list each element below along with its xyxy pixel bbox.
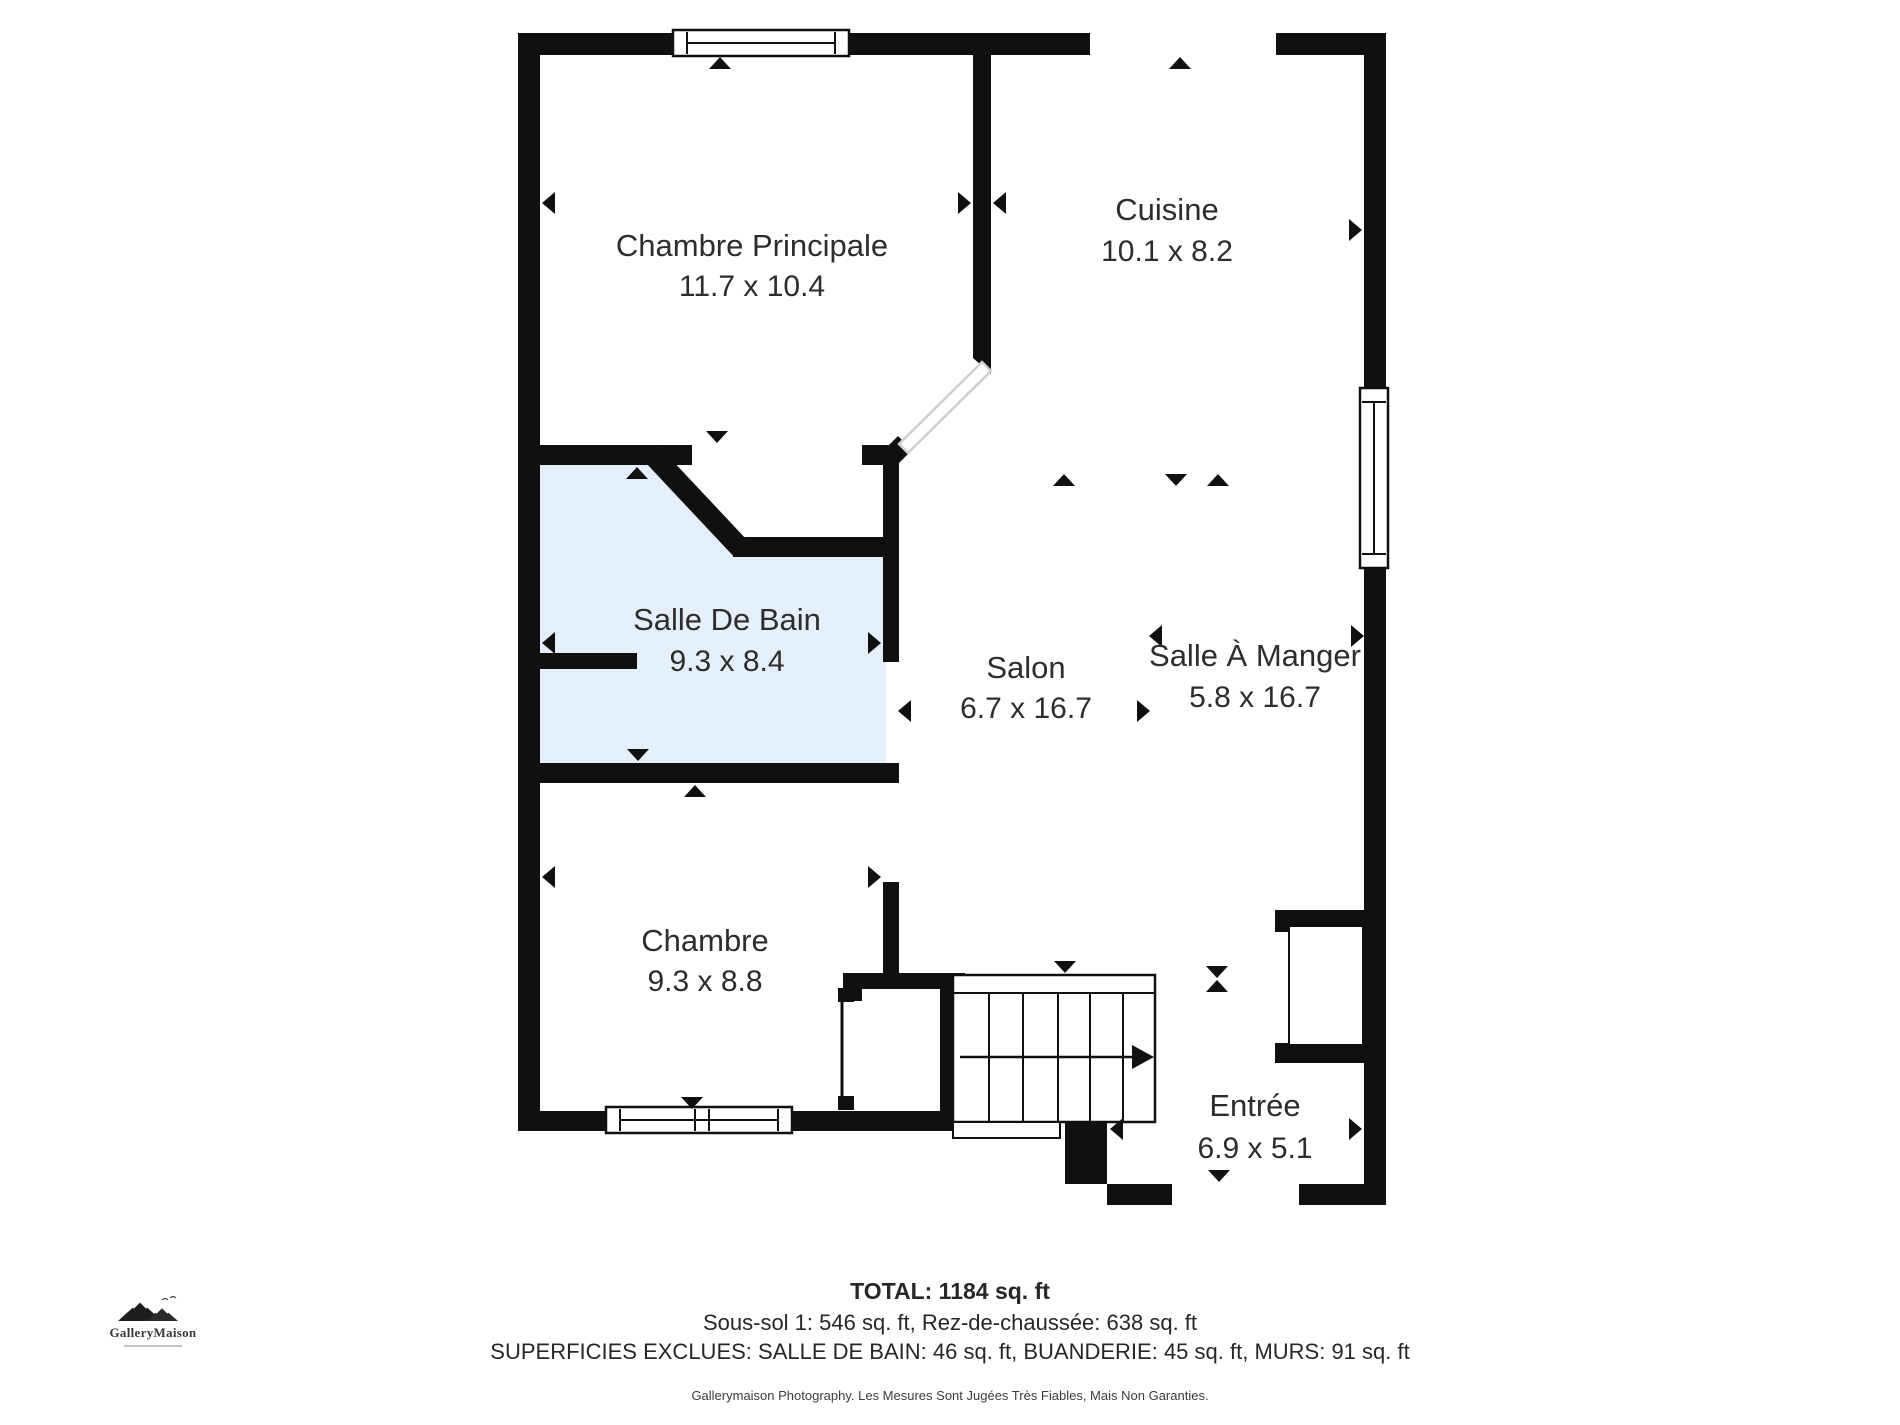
height-marker	[1206, 966, 1228, 978]
door-marker	[684, 785, 706, 797]
dim-marker	[542, 192, 555, 214]
entree-bottom-wall-right	[1299, 1184, 1386, 1205]
stairs-landing	[953, 1122, 1060, 1138]
logo-tagline	[124, 1345, 182, 1347]
room-label-cuisine: Cuisine	[1115, 192, 1218, 227]
dim-marker	[958, 192, 971, 214]
dim-marker	[1207, 474, 1229, 486]
top-wall-left	[518, 33, 675, 55]
dim-marker	[1349, 219, 1362, 241]
chambre-right-wall	[883, 882, 899, 973]
bathroom-right-wall	[883, 445, 899, 662]
floorplan-page: Chambre Principale11.7 x 10.4Cuisine10.1…	[0, 0, 1900, 1425]
dim-marker	[898, 700, 911, 722]
room-label-chambre-principale: Chambre Principale	[616, 228, 888, 263]
bathroom-bottom-wall	[518, 763, 899, 783]
gallerymaison-logo: GalleryMaison	[98, 1296, 208, 1347]
mountain-logo-icon	[110, 1296, 196, 1322]
door-marker	[1169, 57, 1191, 69]
room-label-salle-a-manger: Salle À Manger	[1149, 638, 1361, 673]
top-wall-mid	[847, 33, 1090, 55]
dim-marker	[993, 192, 1006, 214]
door-marker	[1054, 961, 1076, 973]
logo-name: GalleryMaison	[98, 1325, 208, 1341]
room-dims-cuisine: 10.1 x 8.2	[1101, 235, 1233, 268]
room-dims-chambre: 9.3 x 8.8	[647, 965, 762, 998]
diagonal-door-corridor	[899, 362, 991, 453]
room-label-chambre: Chambre	[641, 923, 769, 958]
floor-plan-drawing: Chambre Principale11.7 x 10.4Cuisine10.1…	[0, 0, 1900, 1425]
room-dims-salle-a-manger: 5.8 x 16.7	[1189, 681, 1321, 714]
room-dims-salon: 6.7 x 16.7	[960, 692, 1092, 725]
door-marker	[1208, 1170, 1230, 1182]
room-dims-chambre-principale: 11.7 x 10.4	[679, 270, 825, 303]
total-area-text: TOTAL: 1184 sq. ft	[0, 1278, 1900, 1305]
bottom-corner-block	[1065, 1122, 1107, 1184]
levels-area-text: Sous-sol 1: 546 sq. ft, Rez-de-chaussée:…	[0, 1310, 1900, 1336]
closet-pocket-bottom-wall	[733, 537, 885, 557]
staircase	[953, 975, 1155, 1122]
left-wall	[518, 33, 540, 1131]
excluded-area-text: SUPERFICIES EXCLUES: SALLE DE BAIN: 46 s…	[0, 1339, 1900, 1365]
closet-door-nub	[838, 988, 854, 1002]
room-dims-entree: 6.9 x 5.1	[1197, 1132, 1312, 1165]
dim-marker	[542, 866, 555, 888]
divider-chambre-cuisine	[973, 52, 991, 355]
dim-marker	[1137, 700, 1150, 722]
room-label-salle-de-bain: Salle De Bain	[633, 602, 821, 637]
closet-door-nub	[838, 1096, 854, 1110]
dim-marker	[868, 866, 881, 888]
entree-bottom-wall-left	[1107, 1184, 1172, 1205]
door-marker	[709, 57, 731, 69]
bathroom-left-stub-wall	[538, 653, 637, 669]
sam-closet-door-leaf	[1289, 926, 1363, 1045]
room-label-salon: Salon	[986, 650, 1065, 685]
dim-marker	[1165, 474, 1187, 486]
dim-marker	[1349, 1118, 1362, 1140]
height-marker	[1206, 980, 1228, 992]
right-wall	[1364, 33, 1386, 1205]
room-dims-salle-de-bain: 9.3 x 8.4	[669, 645, 784, 678]
disclaimer-text: Gallerymaison Photography. Les Mesures S…	[0, 1388, 1900, 1403]
door-marker	[706, 431, 728, 443]
dim-marker	[1053, 474, 1075, 486]
room-label-entree: Entrée	[1209, 1088, 1300, 1123]
